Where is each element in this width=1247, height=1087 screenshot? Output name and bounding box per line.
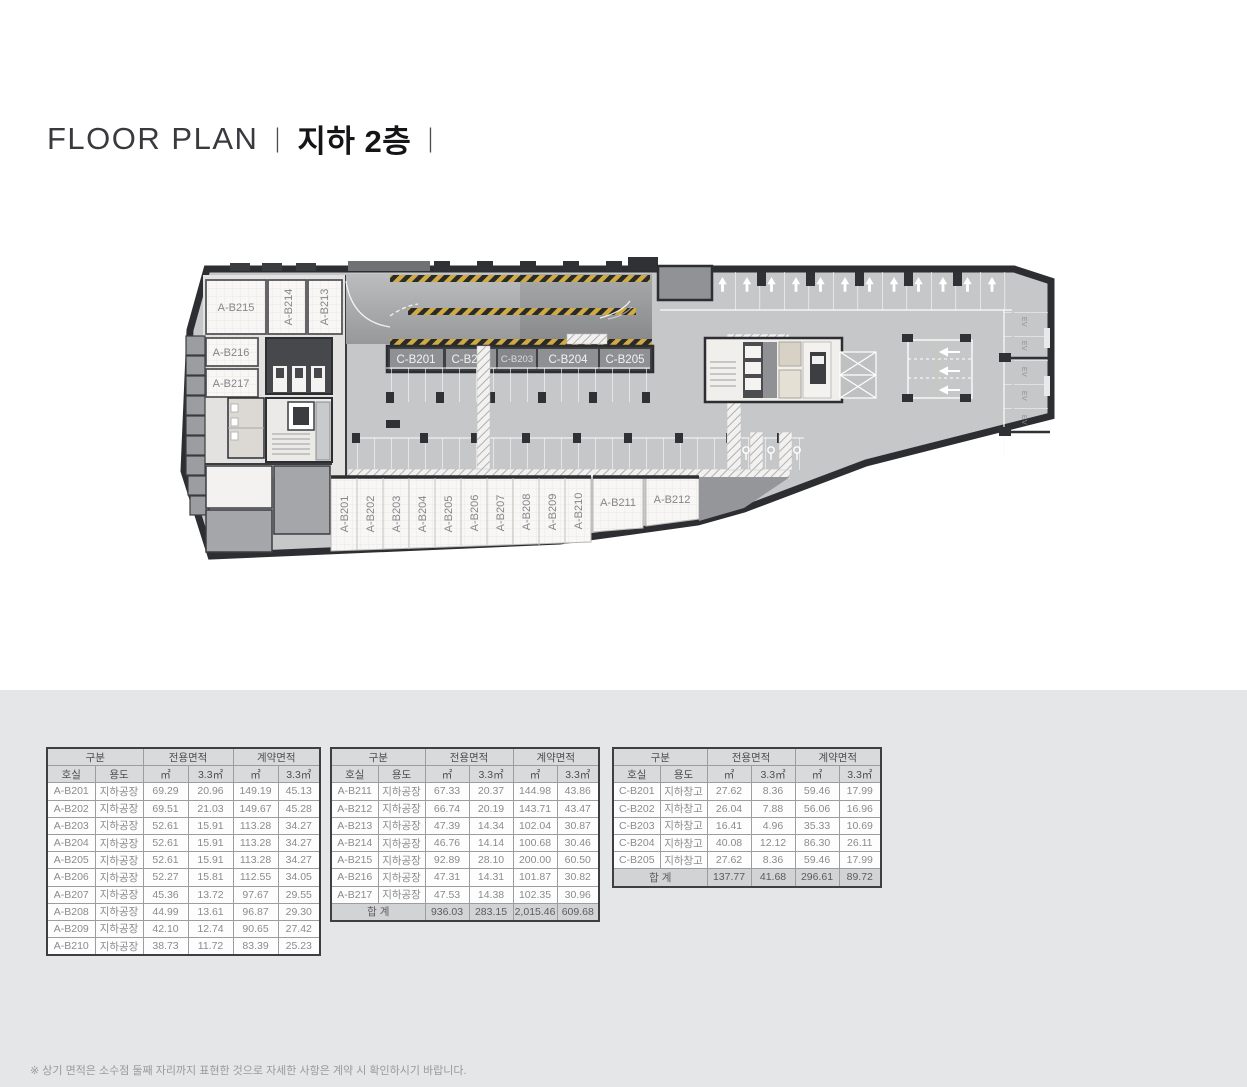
table-cell: 12.12 xyxy=(751,834,795,851)
total-cell: 89.72 xyxy=(839,869,881,887)
table-row: A-B203지하공장52.6115.91113.2834.27 xyxy=(47,817,320,834)
table-cell: 86.30 xyxy=(795,834,839,851)
header-use: 용도 xyxy=(660,766,707,783)
table-cell: 102.35 xyxy=(513,886,557,903)
table-cell: 13.72 xyxy=(188,886,233,903)
table-cell: 28.10 xyxy=(469,852,513,869)
table-cell: 17.99 xyxy=(839,852,881,869)
top-protrusion-room xyxy=(658,266,712,300)
table-cell: 지하공장 xyxy=(95,903,143,920)
ev-stall-label: EV xyxy=(1020,391,1027,401)
table-cell: 29.30 xyxy=(278,903,320,920)
table-cell: 지하공장 xyxy=(95,783,143,800)
table-cell: 30.46 xyxy=(557,834,599,851)
table-header-row: 구분 전용면적 계약면적 xyxy=(331,748,599,766)
table-cell: 149.19 xyxy=(233,783,278,800)
header-room: 호실 xyxy=(47,766,95,783)
table-cell: 지하창고 xyxy=(660,817,707,834)
table-cell: 지하공장 xyxy=(95,886,143,903)
table-cell: 30.87 xyxy=(557,817,599,834)
table-cell: 15.91 xyxy=(188,834,233,851)
table-row: A-B216지하공장47.3114.31101.8730.82 xyxy=(331,869,599,886)
room-label-a-b207: A-B207 xyxy=(495,495,507,532)
table-cell: 96.87 xyxy=(233,903,278,920)
table-cell: 지하공장 xyxy=(378,817,425,834)
table-cell: 52.61 xyxy=(143,852,188,869)
table-cell: A-B210 xyxy=(47,938,95,956)
room-label-a-b215: A-B215 xyxy=(218,302,255,314)
header-py: 3.3㎡ xyxy=(751,766,795,783)
restroom-left xyxy=(228,398,264,458)
table-cell: A-B205 xyxy=(47,852,95,869)
header-room: 호실 xyxy=(331,766,378,783)
room-label-a-b201: A-B201 xyxy=(339,496,351,533)
table-cell: C-B202 xyxy=(613,800,660,817)
table-cell: 45.28 xyxy=(278,800,320,817)
unit-strip-bottom: A-B201 A-B202 A-B203 A-B204 A-B205 A-B20… xyxy=(331,477,591,551)
ev-stall-label: EV xyxy=(1020,317,1027,327)
table-cell: 45.36 xyxy=(143,886,188,903)
room-label-a-b217: A-B217 xyxy=(213,378,250,390)
table-cell: A-B216 xyxy=(331,869,378,886)
header-py: 3.3㎡ xyxy=(278,766,320,783)
table-row: A-B209지하공장42.1012.7490.6527.42 xyxy=(47,920,320,937)
room-label-a-b216: A-B216 xyxy=(213,347,250,359)
table-cell: 지하창고 xyxy=(660,783,707,800)
table-cell: 27.62 xyxy=(707,852,751,869)
table-cell: 15.81 xyxy=(188,869,233,886)
table-cell: 34.27 xyxy=(278,817,320,834)
table-cell: 25.23 xyxy=(278,938,320,956)
table-cell: 34.27 xyxy=(278,834,320,851)
hazard-stripe-middle xyxy=(408,308,636,315)
table-cell: 112.55 xyxy=(233,869,278,886)
header-py: 3.3㎡ xyxy=(188,766,233,783)
table-header-row: 구분 전용면적 계약면적 xyxy=(613,748,881,766)
table-cell: 14.34 xyxy=(469,817,513,834)
table-cell: 지하공장 xyxy=(95,920,143,937)
table-cell: 지하창고 xyxy=(660,800,707,817)
header-contract-area: 계약면적 xyxy=(513,748,599,766)
table-cell: 20.19 xyxy=(469,800,513,817)
table-total-row: 합 계936.03283.152,015.46609.68 xyxy=(331,903,599,921)
table-cell: 46.76 xyxy=(425,834,469,851)
table-cell: 52.61 xyxy=(143,817,188,834)
table-cell: 56.06 xyxy=(795,800,839,817)
total-cell: 137.77 xyxy=(707,869,751,887)
table-cell: 34.05 xyxy=(278,869,320,886)
table-cell: 20.96 xyxy=(188,783,233,800)
table-cell: 16.41 xyxy=(707,817,751,834)
footnote: ※ 상기 면적은 소수점 둘째 자리까지 표현한 것으로 자세한 사항은 계약 … xyxy=(30,1062,467,1078)
table-cell: A-B206 xyxy=(47,869,95,886)
table-row: A-B217지하공장47.5314.38102.3530.96 xyxy=(331,886,599,903)
table-cell: 92.89 xyxy=(425,852,469,869)
table-cell: 4.96 xyxy=(751,817,795,834)
table-cell: A-B202 xyxy=(47,800,95,817)
table-cell: 47.31 xyxy=(425,869,469,886)
table-cell: 17.99 xyxy=(839,783,881,800)
table-cell: 8.36 xyxy=(751,783,795,800)
table-cell: 11.72 xyxy=(188,938,233,956)
table-cell: 지하공장 xyxy=(95,852,143,869)
area-table-a211-a217: 구분 전용면적 계약면적 호실 용도 ㎡ 3.3㎡ ㎡ 3.3㎡ A-B211지… xyxy=(330,747,600,922)
table-cell: 143.71 xyxy=(513,800,557,817)
table-row: A-B202지하공장69.5121.03149.6745.28 xyxy=(47,800,320,817)
room-label-a-b212: A-B212 xyxy=(654,494,691,506)
table-cell: 지하공장 xyxy=(95,817,143,834)
hazard-stripe-top xyxy=(390,275,650,282)
table-cell: 지하공장 xyxy=(95,834,143,851)
table-cell: 20.37 xyxy=(469,783,513,800)
table-cell: 101.87 xyxy=(513,869,557,886)
table-row: A-B214지하공장46.7614.14100.6830.46 xyxy=(331,834,599,851)
table-cell: 47.39 xyxy=(425,817,469,834)
table-row: C-B201지하창고27.628.3659.4617.99 xyxy=(613,783,881,800)
room-label-c-b201: C-B201 xyxy=(397,354,436,366)
table-subheader-row: 호실 용도 ㎡ 3.3㎡ ㎡ 3.3㎡ xyxy=(613,766,881,783)
header-exclusive-area: 전용면적 xyxy=(143,748,233,766)
table-cell: 지하공장 xyxy=(378,783,425,800)
table-cell: 38.73 xyxy=(143,938,188,956)
table-subheader-row: 호실 용도 ㎡ 3.3㎡ ㎡ 3.3㎡ xyxy=(331,766,599,783)
table-cell: 59.46 xyxy=(795,783,839,800)
table-cell: 52.61 xyxy=(143,834,188,851)
table-cell: A-B203 xyxy=(47,817,95,834)
header-contract-area: 계약면적 xyxy=(233,748,320,766)
table-row: A-B211지하공장67.3320.37144.9843.86 xyxy=(331,783,599,800)
table-total-row: 합 계137.7741.68296.6189.72 xyxy=(613,869,881,887)
table-cell: 97.67 xyxy=(233,886,278,903)
room-label-c-b203: C-B203 xyxy=(501,354,533,365)
header-use: 용도 xyxy=(95,766,143,783)
table-row: A-B206지하공장52.2715.81112.5534.05 xyxy=(47,869,320,886)
table-cell: 26.04 xyxy=(707,800,751,817)
room-label-a-b214: A-B214 xyxy=(283,289,295,326)
table-row: A-B213지하공장47.3914.34102.0430.87 xyxy=(331,817,599,834)
table-cell: A-B209 xyxy=(47,920,95,937)
header-exclusive-area: 전용면적 xyxy=(425,748,513,766)
table-header-row: 구분 전용면적 계약면적 xyxy=(47,748,320,766)
room-label-a-b206: A-B206 xyxy=(469,495,481,532)
table-cell: 8.36 xyxy=(751,852,795,869)
header-py: 3.3㎡ xyxy=(557,766,599,783)
table-row: C-B203지하창고16.414.9635.3310.69 xyxy=(613,817,881,834)
table-cell: 144.98 xyxy=(513,783,557,800)
room-label-c-b205: C-B205 xyxy=(606,354,645,366)
total-cell: 936.03 xyxy=(425,903,469,921)
table-cell: 지하공장 xyxy=(95,800,143,817)
room-label-a-b204: A-B204 xyxy=(417,496,429,533)
table-cell: 21.03 xyxy=(188,800,233,817)
room-label-a-b205: A-B205 xyxy=(443,496,455,533)
stair-core-left xyxy=(266,398,332,462)
table-cell: 15.91 xyxy=(188,852,233,869)
table-cell: 42.10 xyxy=(143,920,188,937)
header-group: 구분 xyxy=(47,748,143,766)
table-cell: 14.38 xyxy=(469,886,513,903)
table-cell: 90.65 xyxy=(233,920,278,937)
total-cell: 296.61 xyxy=(795,869,839,887)
table-cell: C-B205 xyxy=(613,852,660,869)
table-cell: 45.13 xyxy=(278,783,320,800)
table-cell: 113.28 xyxy=(233,852,278,869)
parking-stalls-row1 xyxy=(386,368,650,403)
table-cell: 47.53 xyxy=(425,886,469,903)
table-row: A-B210지하공장38.7311.7283.3925.23 xyxy=(47,938,320,956)
table-cell: 30.96 xyxy=(557,886,599,903)
table-row: C-B202지하창고26.047.8856.0616.96 xyxy=(613,800,881,817)
parking-stalls-top-right xyxy=(660,272,1012,310)
table-row: A-B212지하공장66.7420.19143.7143.47 xyxy=(331,800,599,817)
table-cell: C-B204 xyxy=(613,834,660,851)
table-cell: 26.11 xyxy=(839,834,881,851)
table-cell: 14.31 xyxy=(469,869,513,886)
table-cell: 지하공장 xyxy=(378,800,425,817)
table-cell: 29.55 xyxy=(278,886,320,903)
table-cell: 지하공장 xyxy=(378,852,425,869)
elevator-core-right xyxy=(705,338,842,402)
ev-stall-label: EV xyxy=(1020,415,1027,425)
ev-stall-label: EV xyxy=(1020,341,1027,351)
ev-stall-label: EV xyxy=(1020,367,1027,377)
header-group: 구분 xyxy=(613,748,707,766)
table-cell: 52.27 xyxy=(143,869,188,886)
table-row: A-B208지하공장44.9913.6196.8729.30 xyxy=(47,903,320,920)
total-label: 합 계 xyxy=(613,869,707,887)
area-table-c201-c205: 구분 전용면적 계약면적 호실 용도 ㎡ 3.3㎡ ㎡ 3.3㎡ C-B201지… xyxy=(612,747,882,888)
table-cell: 지하공장 xyxy=(95,938,143,956)
table-cell: 27.42 xyxy=(278,920,320,937)
table-cell: A-B213 xyxy=(331,817,378,834)
header-py: 3.3㎡ xyxy=(469,766,513,783)
table-cell: 113.28 xyxy=(233,817,278,834)
header-exclusive-area: 전용면적 xyxy=(707,748,795,766)
table-cell: A-B204 xyxy=(47,834,95,851)
room-label-a-b203: A-B203 xyxy=(391,496,403,533)
table-cell: 100.68 xyxy=(513,834,557,851)
table-cell: 12.74 xyxy=(188,920,233,937)
table-cell: 지하창고 xyxy=(660,852,707,869)
table-cell: C-B201 xyxy=(613,783,660,800)
table-cell: 14.14 xyxy=(469,834,513,851)
table-cell: 지하공장 xyxy=(378,834,425,851)
table-row: C-B204지하창고40.0812.1286.3026.11 xyxy=(613,834,881,851)
table-cell: 35.33 xyxy=(795,817,839,834)
table-cell: 34.27 xyxy=(278,852,320,869)
header-m2: ㎡ xyxy=(425,766,469,783)
table-cell: 83.39 xyxy=(233,938,278,956)
header-m2: ㎡ xyxy=(707,766,751,783)
room-label-c-b204: C-B204 xyxy=(549,354,589,366)
table-cell: A-B212 xyxy=(331,800,378,817)
table-cell: 67.33 xyxy=(425,783,469,800)
table-cell: 27.62 xyxy=(707,783,751,800)
table-cell: 69.51 xyxy=(143,800,188,817)
area-table-a201-a210: 구분 전용면적 계약면적 호실 용도 ㎡ 3.3㎡ ㎡ 3.3㎡ A-B201지… xyxy=(46,747,321,956)
table-cell: 지하공장 xyxy=(95,869,143,886)
table-row: C-B205지하창고27.628.3659.4617.99 xyxy=(613,852,881,869)
table-cell: 149.67 xyxy=(233,800,278,817)
table-cell: 30.82 xyxy=(557,869,599,886)
table-cell: 44.99 xyxy=(143,903,188,920)
table-cell: 69.29 xyxy=(143,783,188,800)
table-cell: 59.46 xyxy=(795,852,839,869)
total-cell: 2,015.46 xyxy=(513,903,557,921)
table-cell: A-B207 xyxy=(47,886,95,903)
table-cell: A-B201 xyxy=(47,783,95,800)
room-label-a-b213: A-B213 xyxy=(319,289,331,326)
total-cell: 41.68 xyxy=(751,869,795,887)
table-row: A-B215지하공장92.8928.10200.0060.50 xyxy=(331,852,599,869)
total-cell: 283.15 xyxy=(469,903,513,921)
table-cell: 66.74 xyxy=(425,800,469,817)
header-room: 호실 xyxy=(613,766,660,783)
total-cell: 609.68 xyxy=(557,903,599,921)
table-cell: 102.04 xyxy=(513,817,557,834)
table-cell: 7.88 xyxy=(751,800,795,817)
table-cell: 43.47 xyxy=(557,800,599,817)
table-row: A-B205지하공장52.6115.91113.2834.27 xyxy=(47,852,320,869)
table-cell: 43.86 xyxy=(557,783,599,800)
table-row: A-B207지하공장45.3613.7297.6729.55 xyxy=(47,886,320,903)
table-cell: A-B208 xyxy=(47,903,95,920)
table-cell: A-B217 xyxy=(331,886,378,903)
header-m2: ㎡ xyxy=(143,766,188,783)
table-cell: 60.50 xyxy=(557,852,599,869)
header-py: 3.3㎡ xyxy=(839,766,881,783)
elevator-core-left xyxy=(266,338,332,394)
room-label-a-b202: A-B202 xyxy=(365,496,377,533)
table-cell: A-B215 xyxy=(331,852,378,869)
total-label: 합 계 xyxy=(331,903,425,921)
table-cell: 200.00 xyxy=(513,852,557,869)
room-label-a-b209: A-B209 xyxy=(547,494,559,531)
table-cell: A-B211 xyxy=(331,783,378,800)
table-cell: 지하공장 xyxy=(378,869,425,886)
table-subheader-row: 호실 용도 ㎡ 3.3㎡ ㎡ 3.3㎡ xyxy=(47,766,320,783)
table-row: A-B204지하공장52.6115.91113.2834.27 xyxy=(47,834,320,851)
header-contract-area: 계약면적 xyxy=(795,748,881,766)
room-label-a-b210: A-B210 xyxy=(573,493,585,530)
table-cell: A-B214 xyxy=(331,834,378,851)
table-cell: 지하공장 xyxy=(378,886,425,903)
table-cell: 16.96 xyxy=(839,800,881,817)
table-cell: 40.08 xyxy=(707,834,751,851)
floor-plan-page: { "title": {"main": "FLOOR PLAN", "sep1"… xyxy=(0,0,1247,1087)
cross-hatch-blocks xyxy=(840,352,876,398)
header-m2: ㎡ xyxy=(513,766,557,783)
header-m2: ㎡ xyxy=(233,766,278,783)
room-label-a-b211: A-B211 xyxy=(600,497,636,509)
table-cell: 10.69 xyxy=(839,817,881,834)
table-cell: C-B203 xyxy=(613,817,660,834)
room-label-a-b208: A-B208 xyxy=(521,494,533,531)
table-cell: 13.61 xyxy=(188,903,233,920)
header-m2: ㎡ xyxy=(795,766,839,783)
header-use: 용도 xyxy=(378,766,425,783)
table-cell: 113.28 xyxy=(233,834,278,851)
table-cell: 15.91 xyxy=(188,817,233,834)
header-group: 구분 xyxy=(331,748,425,766)
table-row: A-B201지하공장69.2920.96149.1945.13 xyxy=(47,783,320,800)
table-cell: 지하창고 xyxy=(660,834,707,851)
ev-parking-column: EV EV EV EV EV xyxy=(999,310,1050,456)
